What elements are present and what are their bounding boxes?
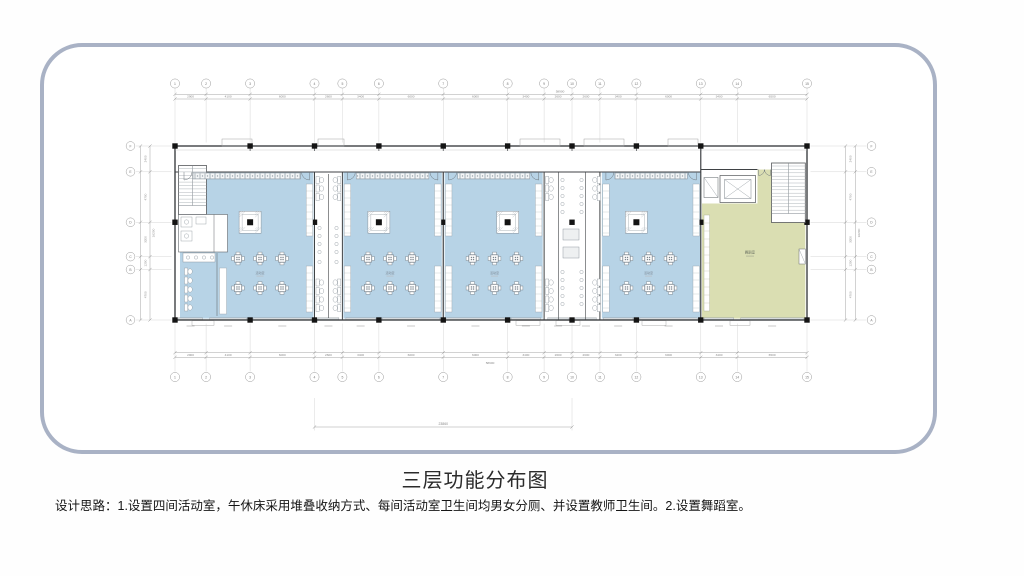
svg-text:4: 4 — [314, 82, 316, 86]
svg-text:6000: 6000 — [279, 353, 286, 357]
svg-text:4: 4 — [314, 376, 316, 380]
svg-text:8: 8 — [507, 376, 509, 380]
svg-text:2: 2 — [205, 376, 207, 380]
svg-text:2900: 2900 — [187, 95, 194, 99]
svg-text:12: 12 — [635, 82, 639, 86]
floor-plan-drawing: 活动室活动室活动室活动室舞蹈室1122334455667788991010111… — [0, 0, 1024, 462]
svg-text:7: 7 — [442, 376, 444, 380]
svg-text:10: 10 — [570, 82, 574, 86]
svg-text:3400: 3400 — [615, 95, 622, 99]
svg-text:3400: 3400 — [716, 95, 723, 99]
svg-text:活动室: 活动室 — [385, 270, 394, 275]
svg-text:6500: 6500 — [769, 95, 776, 99]
svg-text:2600: 2600 — [555, 353, 562, 357]
svg-text:4100: 4100 — [225, 353, 232, 357]
svg-text:6000: 6000 — [472, 353, 479, 357]
svg-text:13: 13 — [699, 376, 703, 380]
svg-text:F: F — [129, 144, 131, 148]
svg-text:活动室: 活动室 — [644, 270, 653, 275]
design-notes: 设计思路：1.设置四间活动室，午休床采用堆叠收纳方式、每间活动室卫生间均男女分厕… — [55, 498, 985, 515]
svg-text:1200: 1200 — [143, 259, 147, 266]
svg-text:2600: 2600 — [583, 95, 590, 99]
svg-text:4700: 4700 — [143, 291, 147, 298]
svg-text:8: 8 — [507, 82, 509, 86]
svg-text:23860: 23860 — [439, 422, 449, 426]
svg-text:6000: 6000 — [279, 95, 286, 99]
svg-text:16200: 16200 — [857, 228, 861, 237]
svg-text:11: 11 — [598, 82, 602, 86]
svg-text:6000: 6000 — [472, 95, 479, 99]
svg-text:7: 7 — [442, 82, 444, 86]
svg-text:9: 9 — [543, 82, 545, 86]
svg-text:3400: 3400 — [357, 95, 364, 99]
svg-text:2600: 2600 — [555, 95, 562, 99]
svg-text:3: 3 — [249, 82, 251, 86]
svg-text:5: 5 — [341, 376, 343, 380]
svg-text:F: F — [870, 144, 872, 148]
svg-text:2: 2 — [205, 82, 207, 86]
svg-text:2600: 2600 — [325, 95, 332, 99]
svg-text:活动室: 活动室 — [490, 270, 499, 275]
svg-text:12: 12 — [635, 376, 639, 380]
svg-text:58900: 58900 — [486, 361, 495, 365]
svg-text:3400: 3400 — [615, 353, 622, 357]
svg-text:3200: 3200 — [849, 236, 853, 243]
svg-text:活动室: 活动室 — [255, 270, 264, 275]
svg-text:2400: 2400 — [849, 155, 853, 162]
svg-text:16200: 16200 — [152, 228, 156, 237]
svg-text:3400: 3400 — [522, 353, 529, 357]
svg-text:3400: 3400 — [357, 353, 364, 357]
svg-text:3: 3 — [249, 376, 251, 380]
svg-text:6000: 6000 — [408, 95, 415, 99]
svg-text:14: 14 — [735, 376, 739, 380]
page-title: 三层功能分布图 — [0, 464, 950, 493]
svg-text:4700: 4700 — [849, 291, 853, 298]
svg-text:3400: 3400 — [716, 353, 723, 357]
svg-text:6000: 6000 — [665, 353, 672, 357]
svg-text:5: 5 — [341, 82, 343, 86]
svg-text:2400: 2400 — [143, 155, 147, 162]
svg-text:舞蹈室: 舞蹈室 — [745, 250, 756, 255]
svg-text:2900: 2900 — [187, 353, 194, 357]
svg-text:10: 10 — [570, 376, 574, 380]
svg-text:14: 14 — [735, 82, 739, 86]
svg-text:58900: 58900 — [556, 90, 565, 94]
svg-text:4100: 4100 — [225, 95, 232, 99]
svg-text:6000: 6000 — [408, 353, 415, 357]
svg-text:4700: 4700 — [849, 193, 853, 200]
svg-text:6: 6 — [378, 376, 380, 380]
svg-text:13: 13 — [699, 82, 703, 86]
svg-text:3200: 3200 — [143, 236, 147, 243]
svg-text:2600: 2600 — [325, 353, 332, 357]
svg-text:1: 1 — [174, 82, 176, 86]
svg-text:1200: 1200 — [849, 259, 853, 266]
svg-text:2600: 2600 — [583, 353, 590, 357]
svg-text:6000: 6000 — [665, 95, 672, 99]
svg-text:6500: 6500 — [769, 353, 776, 357]
svg-text:9: 9 — [543, 376, 545, 380]
svg-text:11: 11 — [598, 376, 602, 380]
svg-text:15: 15 — [805, 82, 809, 86]
svg-text:1: 1 — [174, 376, 176, 380]
svg-text:3400: 3400 — [522, 95, 529, 99]
svg-text:15: 15 — [805, 376, 809, 380]
page: 活动室活动室活动室活动室舞蹈室1122334455667788991010111… — [0, 0, 1024, 576]
svg-text:4700: 4700 — [143, 193, 147, 200]
svg-text:6: 6 — [378, 82, 380, 86]
